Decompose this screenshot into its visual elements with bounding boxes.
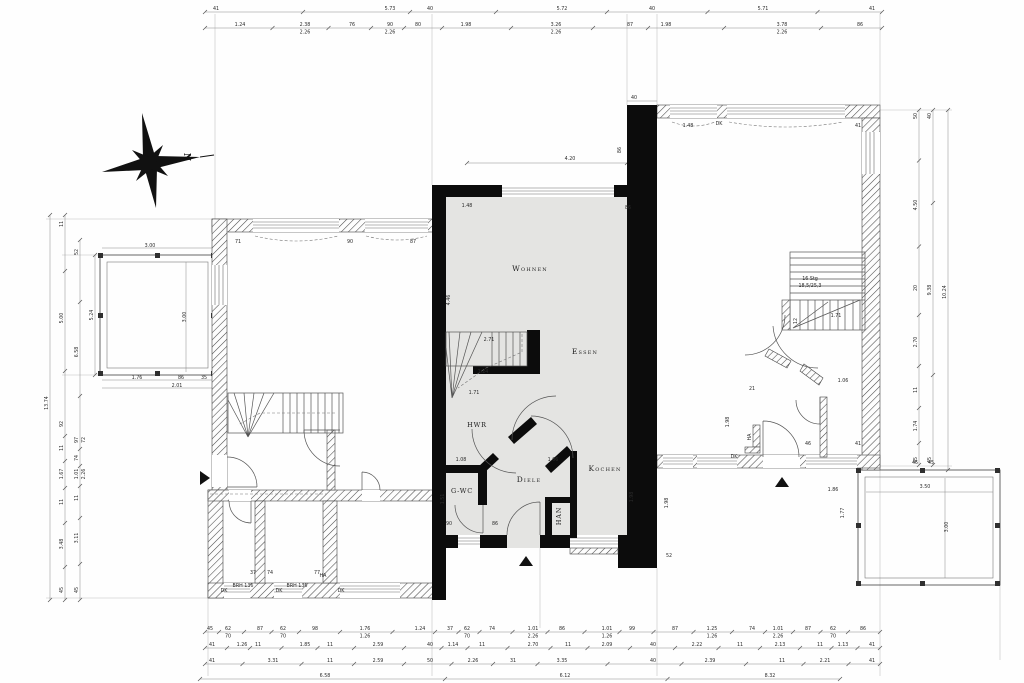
staircase: [790, 252, 865, 330]
dimension-label: 86: [617, 147, 623, 153]
dimension-label: 2.26: [777, 29, 788, 35]
compass-rose-icon: N: [102, 113, 214, 208]
dimension-label: 37: [447, 626, 453, 632]
exterior-wall: [208, 490, 223, 598]
dimension-label: 1.01: [602, 626, 613, 632]
dimension-label: 70: [464, 633, 470, 639]
dimension-label: 11: [59, 445, 65, 451]
dimension-label: 74: [267, 570, 273, 576]
dimension-label: 74: [489, 626, 495, 632]
dimension-label: 1.98: [461, 22, 472, 28]
dimension-label: 2.71: [484, 337, 495, 343]
dimension-label: 1.76: [132, 375, 143, 381]
entrance-marker-icon: [519, 556, 533, 566]
dimension-label: 1.26: [602, 633, 613, 639]
dimension-label: 70: [830, 633, 836, 639]
dimension-label: 2.26: [773, 633, 784, 639]
dimension-label: 41: [869, 6, 875, 12]
dimension-label: 1.98: [725, 417, 731, 428]
dimension-label: 10.24: [942, 285, 948, 299]
dimension-label: 1.85: [300, 642, 311, 648]
dimension-label: 1.48: [462, 203, 473, 209]
dimension-label: 45: [59, 587, 65, 593]
dimension-label: 11: [779, 658, 785, 664]
dimension-label: 2.26: [385, 29, 396, 35]
dimension-label: 45: [74, 587, 80, 593]
dimension-label: 62: [280, 626, 286, 632]
dimension-label: 3.31: [268, 658, 279, 664]
dimension-label: 2.26: [468, 658, 479, 664]
dimension-label: 3.35: [557, 658, 568, 664]
dimension-label: 80: [415, 22, 421, 28]
dimension-label: 1.26: [707, 633, 718, 639]
dimension-label: 72: [81, 437, 87, 443]
dimension-label: 3.00: [944, 522, 950, 533]
dimension-label: 1.74: [913, 421, 919, 432]
window-label: DK: [716, 121, 724, 127]
window-label: BRH 136: [287, 583, 308, 589]
entrance-marker-icon: [775, 477, 789, 487]
dimension-label: 37: [250, 570, 256, 576]
dimension-label: 40: [650, 658, 656, 664]
floor-plan-canvas: N Wohnen Essen HWR Diele Kochen G-WC HAN…: [0, 0, 1024, 683]
left-outbuilding: [98, 248, 216, 388]
dimension-label: 8.32: [765, 673, 776, 679]
dimension-label: 99: [629, 626, 635, 632]
dimension-label: 1.01: [74, 469, 80, 480]
window-label: DK: [276, 588, 284, 594]
dimension-label: 1.98: [664, 498, 670, 509]
dimension-label: 1.13: [838, 642, 849, 648]
dimension-label: 1.26: [360, 633, 371, 639]
dimension-label: 11: [737, 642, 743, 648]
dimension-label: 5.00: [59, 313, 65, 324]
dimension-label: 2.13: [775, 642, 786, 648]
dimension-label: 1.26: [237, 642, 248, 648]
dimension-label: 3.26: [551, 22, 562, 28]
dimension-label: 1.48: [683, 123, 694, 129]
niche-wall: [753, 425, 760, 447]
dimension-label: 11: [817, 642, 823, 648]
dimension-label: 1.01: [773, 626, 784, 632]
dimension-label: 45: [928, 460, 934, 466]
dimension-label: 40: [649, 6, 655, 12]
dimension-label: 1.24: [415, 626, 426, 632]
dimension-label: 1.77: [840, 508, 846, 519]
dimension-label: 11: [327, 642, 333, 648]
dimension-label: 2.26: [528, 633, 539, 639]
interior-wall: [255, 501, 265, 583]
dimension-label: 1.71: [831, 313, 842, 319]
dimension-label: 11: [565, 642, 571, 648]
room-label-han: HAN: [555, 507, 563, 525]
dimension-label: 13.74: [44, 396, 50, 410]
door-swings: [227, 430, 380, 523]
interior-wall: [820, 397, 827, 457]
pier-marks: [98, 253, 216, 376]
dimension-label: 62: [464, 626, 470, 632]
stair-label: 18,5/25,3: [799, 283, 822, 289]
north-label: N: [181, 153, 191, 161]
dimension-label: 87: [257, 626, 263, 632]
dimension-label: 11: [479, 642, 485, 648]
dimension-label: 90: [387, 22, 393, 28]
window-label: DK: [338, 588, 346, 594]
dimension-label: 86: [625, 205, 631, 211]
dimension-label: 40: [631, 95, 637, 101]
staircase: [228, 393, 343, 437]
dimension-label: 52: [666, 553, 672, 559]
dimension-label: 41: [869, 642, 875, 648]
dimension-label: 2.26: [81, 469, 87, 480]
window-label: DK: [221, 588, 229, 594]
room-label-hwr: HWR: [467, 421, 487, 429]
dimension-label: 11: [59, 221, 65, 227]
dimension-label: 2.70: [528, 642, 539, 648]
diagonal-wall: [800, 364, 823, 385]
dimension-label: 1.06: [838, 378, 849, 384]
dimension-label: 2.59: [373, 642, 384, 648]
dimension-label: 3.50: [920, 484, 931, 490]
dimension-label: 1.71: [469, 390, 480, 396]
dimension-label: 62: [225, 626, 231, 632]
dimension-label: 76: [349, 22, 355, 28]
dimension-label: 40: [427, 642, 433, 648]
dimension-label: 52: [74, 249, 80, 255]
dimension-label: 71: [235, 239, 241, 245]
interior-wall: [782, 300, 790, 330]
dimension-label: 40: [650, 642, 656, 648]
dimension-label: 6.12: [560, 673, 571, 679]
dimension-label: 87: [627, 22, 633, 28]
dimension-label: 1.67: [59, 469, 65, 480]
room-label-essen: Essen: [572, 347, 598, 356]
dimension-label: 98: [312, 626, 318, 632]
dimension-label: 50: [427, 658, 433, 664]
dimension-label: 4.20: [565, 156, 576, 162]
dimension-label: 40: [927, 113, 933, 119]
dimension-label: 11: [74, 495, 80, 501]
dimension-label: 40: [427, 6, 433, 12]
dimension-label: 6.58: [74, 347, 80, 358]
diagonal-wall: [765, 349, 791, 368]
stair-label: 16 Stg: [802, 276, 818, 282]
window-label: BRH 136: [233, 583, 254, 589]
dimension-label: 86: [559, 626, 565, 632]
dimension-label: 5.73: [385, 6, 396, 12]
dimension-label: 62: [830, 626, 836, 632]
dimension-label: 5.24: [89, 310, 95, 321]
dimension-label: 92: [59, 421, 65, 427]
niche-label: HA: [747, 433, 753, 441]
niche-wall: [745, 447, 760, 453]
dimension-label: 2.22: [692, 642, 703, 648]
dimension-label: 2.01: [172, 383, 183, 389]
outbuilding-inner-wall: [107, 262, 208, 368]
dimension-label: 90: [347, 239, 353, 245]
dimension-label: 20: [913, 285, 919, 291]
dimension-label: 1.98: [629, 492, 635, 503]
dimension-label: 11: [913, 387, 919, 393]
dimension-label: 2.21: [820, 658, 831, 664]
dimension-label: 1.98: [661, 22, 672, 28]
dimension-label: 41: [213, 6, 219, 12]
dimension-label: 5.72: [557, 6, 568, 12]
dimension-label: 87: [410, 239, 416, 245]
dimension-label: 45: [912, 460, 918, 466]
dimension-label: 3.78: [777, 22, 788, 28]
dimension-label: 45: [207, 626, 213, 632]
dimension-label: 86: [178, 375, 184, 381]
dimension-label: 41: [869, 658, 875, 664]
dimension-label: 41: [855, 441, 861, 447]
dimension-label: 2.59: [373, 658, 384, 664]
interior-wall: [327, 430, 335, 490]
floor-plan-page: N Wohnen Essen HWR Diele Kochen G-WC HAN…: [0, 0, 1024, 683]
dimension-label: 3.11: [74, 533, 80, 544]
dimension-label: 2.38: [300, 22, 311, 28]
dimension-label: 1.01: [528, 626, 539, 632]
dimension-label: 4.46: [446, 295, 452, 306]
dimension-label: 9.38: [927, 285, 933, 296]
dimension-label: 87: [805, 626, 811, 632]
dimension-label: 86: [492, 521, 498, 527]
dimension-label: 2.09: [602, 642, 613, 648]
dimension-label: 74: [749, 626, 755, 632]
window-label: DK: [731, 454, 739, 460]
interior-wall: [323, 501, 337, 583]
dimension-label: 1.08: [456, 457, 467, 463]
dimension-label: 2.26: [551, 29, 562, 35]
dimension-label: 12: [793, 318, 799, 324]
dimension-label: 1.51: [440, 494, 446, 505]
dimension-label: 77: [314, 570, 320, 576]
dimension-label: 11: [327, 658, 333, 664]
room-label-kochen: Kochen: [588, 464, 621, 473]
dimension-label: 6.58: [320, 673, 331, 679]
dimension-label: 74: [74, 455, 80, 461]
dimension-label: 11: [255, 642, 261, 648]
dimension-label: 50: [913, 113, 919, 119]
dimension-label: 1.86: [828, 487, 839, 493]
dimension-label: 3.48: [59, 539, 65, 550]
exterior-wall: [212, 219, 227, 492]
dimension-label: 90: [446, 521, 452, 527]
niche-label: HA: [320, 573, 328, 579]
dimension-label: 46: [805, 441, 811, 447]
dimension-label: 31: [510, 658, 516, 664]
room-label-wohnen: Wohnen: [512, 264, 548, 273]
dimension-label: 1.24: [478, 369, 489, 375]
dimension-label: 87: [672, 626, 678, 632]
dimension-label: 97: [74, 437, 80, 443]
dimension-label: 86: [857, 22, 863, 28]
right-neighbor-unit: [657, 105, 880, 487]
dimension-label: 1.14: [448, 642, 459, 648]
left-neighbor-unit: [200, 219, 433, 598]
room-label-diele: Diele: [517, 475, 542, 484]
dimension-label: 4.50: [913, 200, 919, 211]
dimension-label: 3.00: [145, 243, 156, 249]
dimension-label: 2.70: [913, 337, 919, 348]
dimension-label: 21: [749, 386, 755, 392]
dimension-label: 1.76: [360, 626, 371, 632]
dimension-label: 70: [225, 633, 231, 639]
dimension-label: 70: [280, 633, 286, 639]
dimension-label: 41: [855, 123, 861, 129]
dimension-label: 11: [59, 499, 65, 505]
dimension-label: 1.06: [548, 457, 559, 463]
dimension-label: 41: [209, 642, 215, 648]
entrance-marker-icon: [200, 471, 210, 485]
dimension-label: 41: [209, 658, 215, 664]
dimension-label: 2.39: [705, 658, 716, 664]
dimension-label: 35: [201, 375, 207, 381]
dimension-label: 5.71: [758, 6, 769, 12]
dimension-label: 3.00: [182, 312, 188, 323]
dimension-label: 1.25: [707, 626, 718, 632]
dimension-label: 2.26: [300, 29, 311, 35]
dimension-label: 1.24: [235, 22, 246, 28]
outbuilding-outer-wall: [100, 255, 215, 375]
dimension-label: 86: [860, 626, 866, 632]
highlighted-unit: [432, 105, 657, 600]
room-label-gwc: G-WC: [451, 487, 473, 495]
